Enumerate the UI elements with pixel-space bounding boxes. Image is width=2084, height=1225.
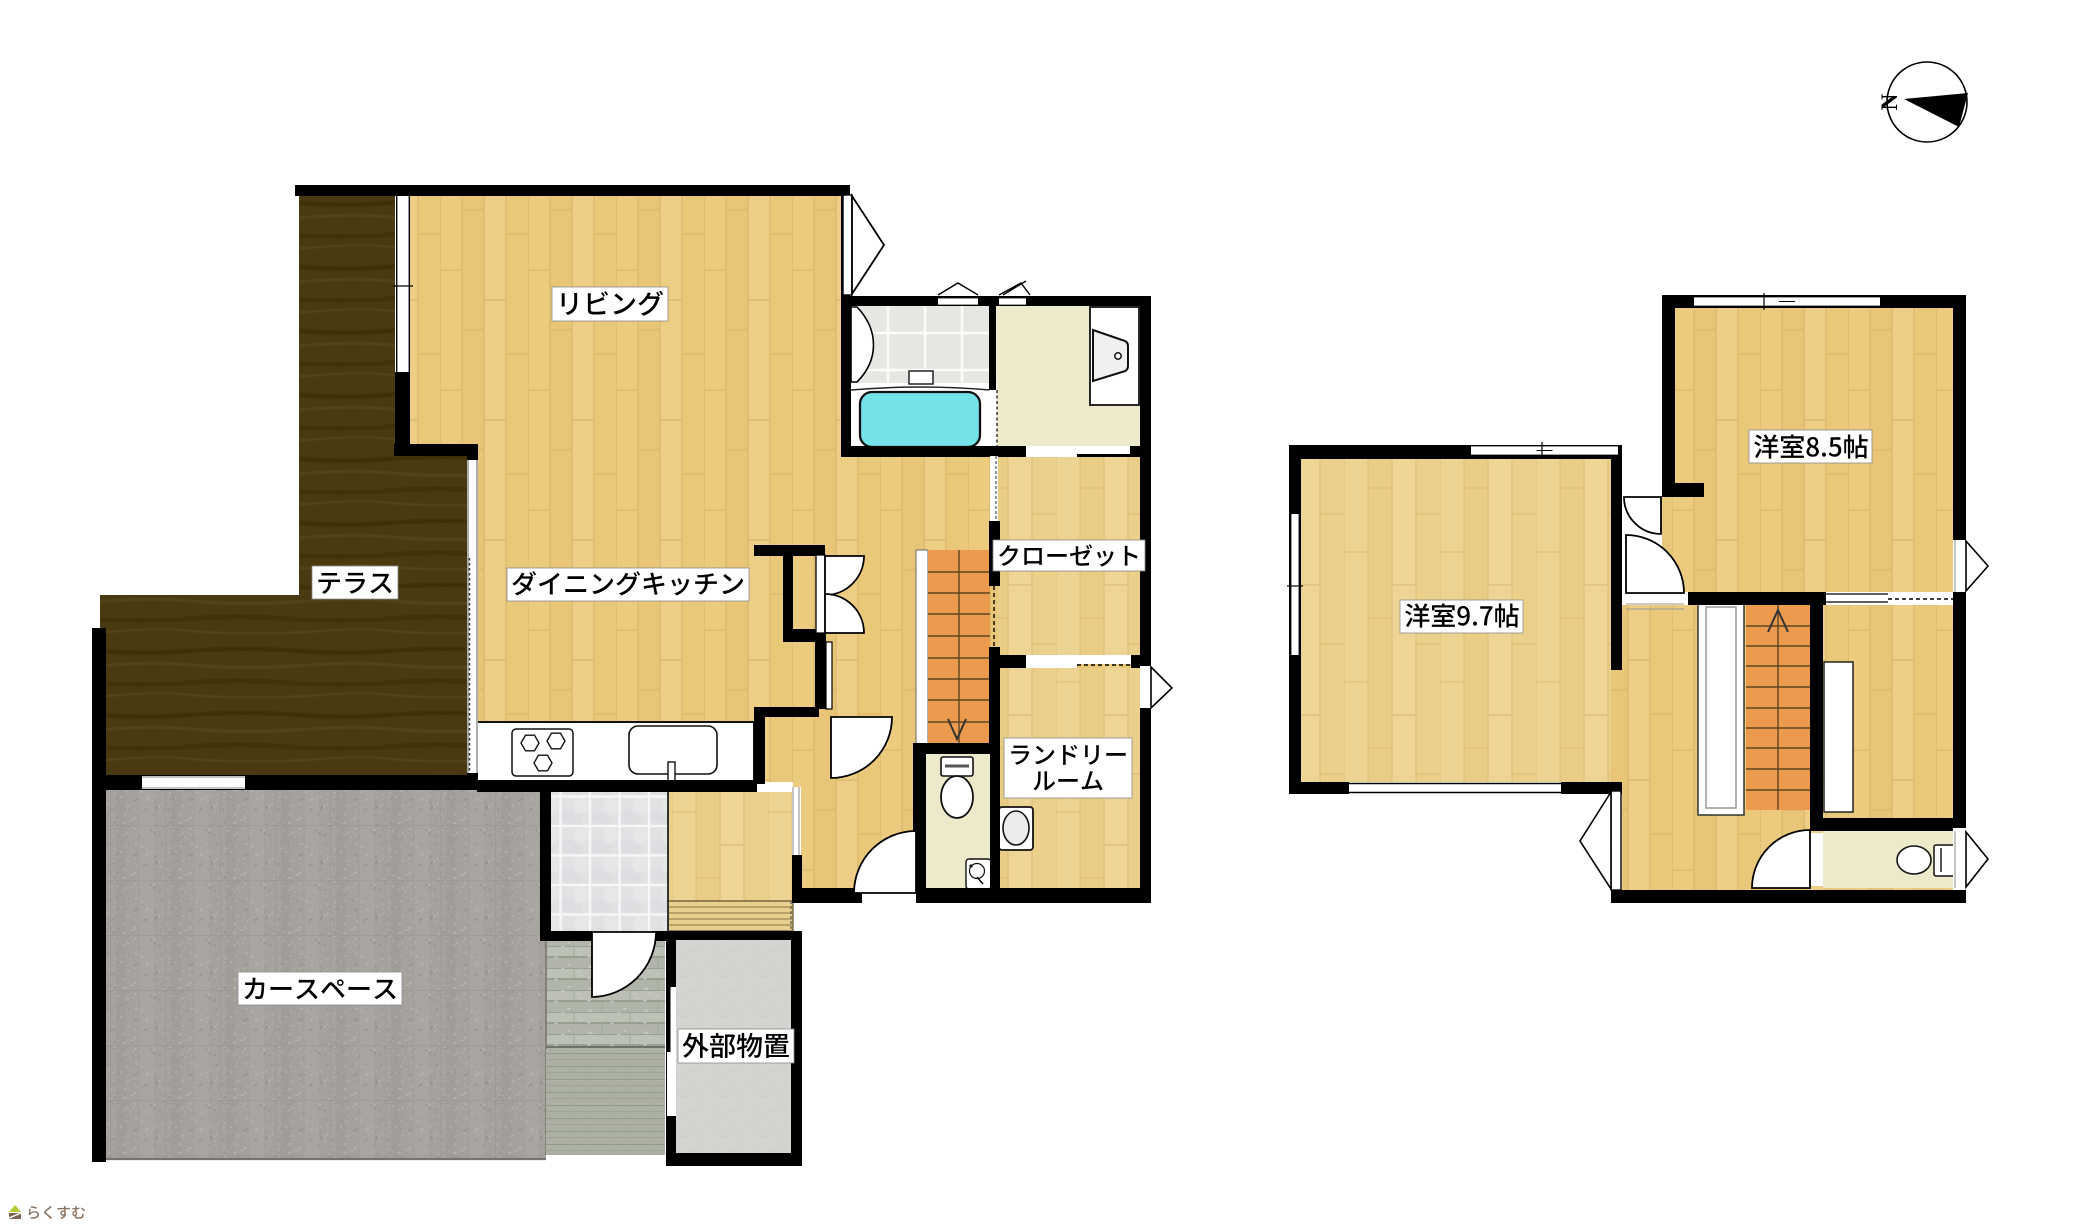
svg-text:N: N <box>1877 93 1902 110</box>
